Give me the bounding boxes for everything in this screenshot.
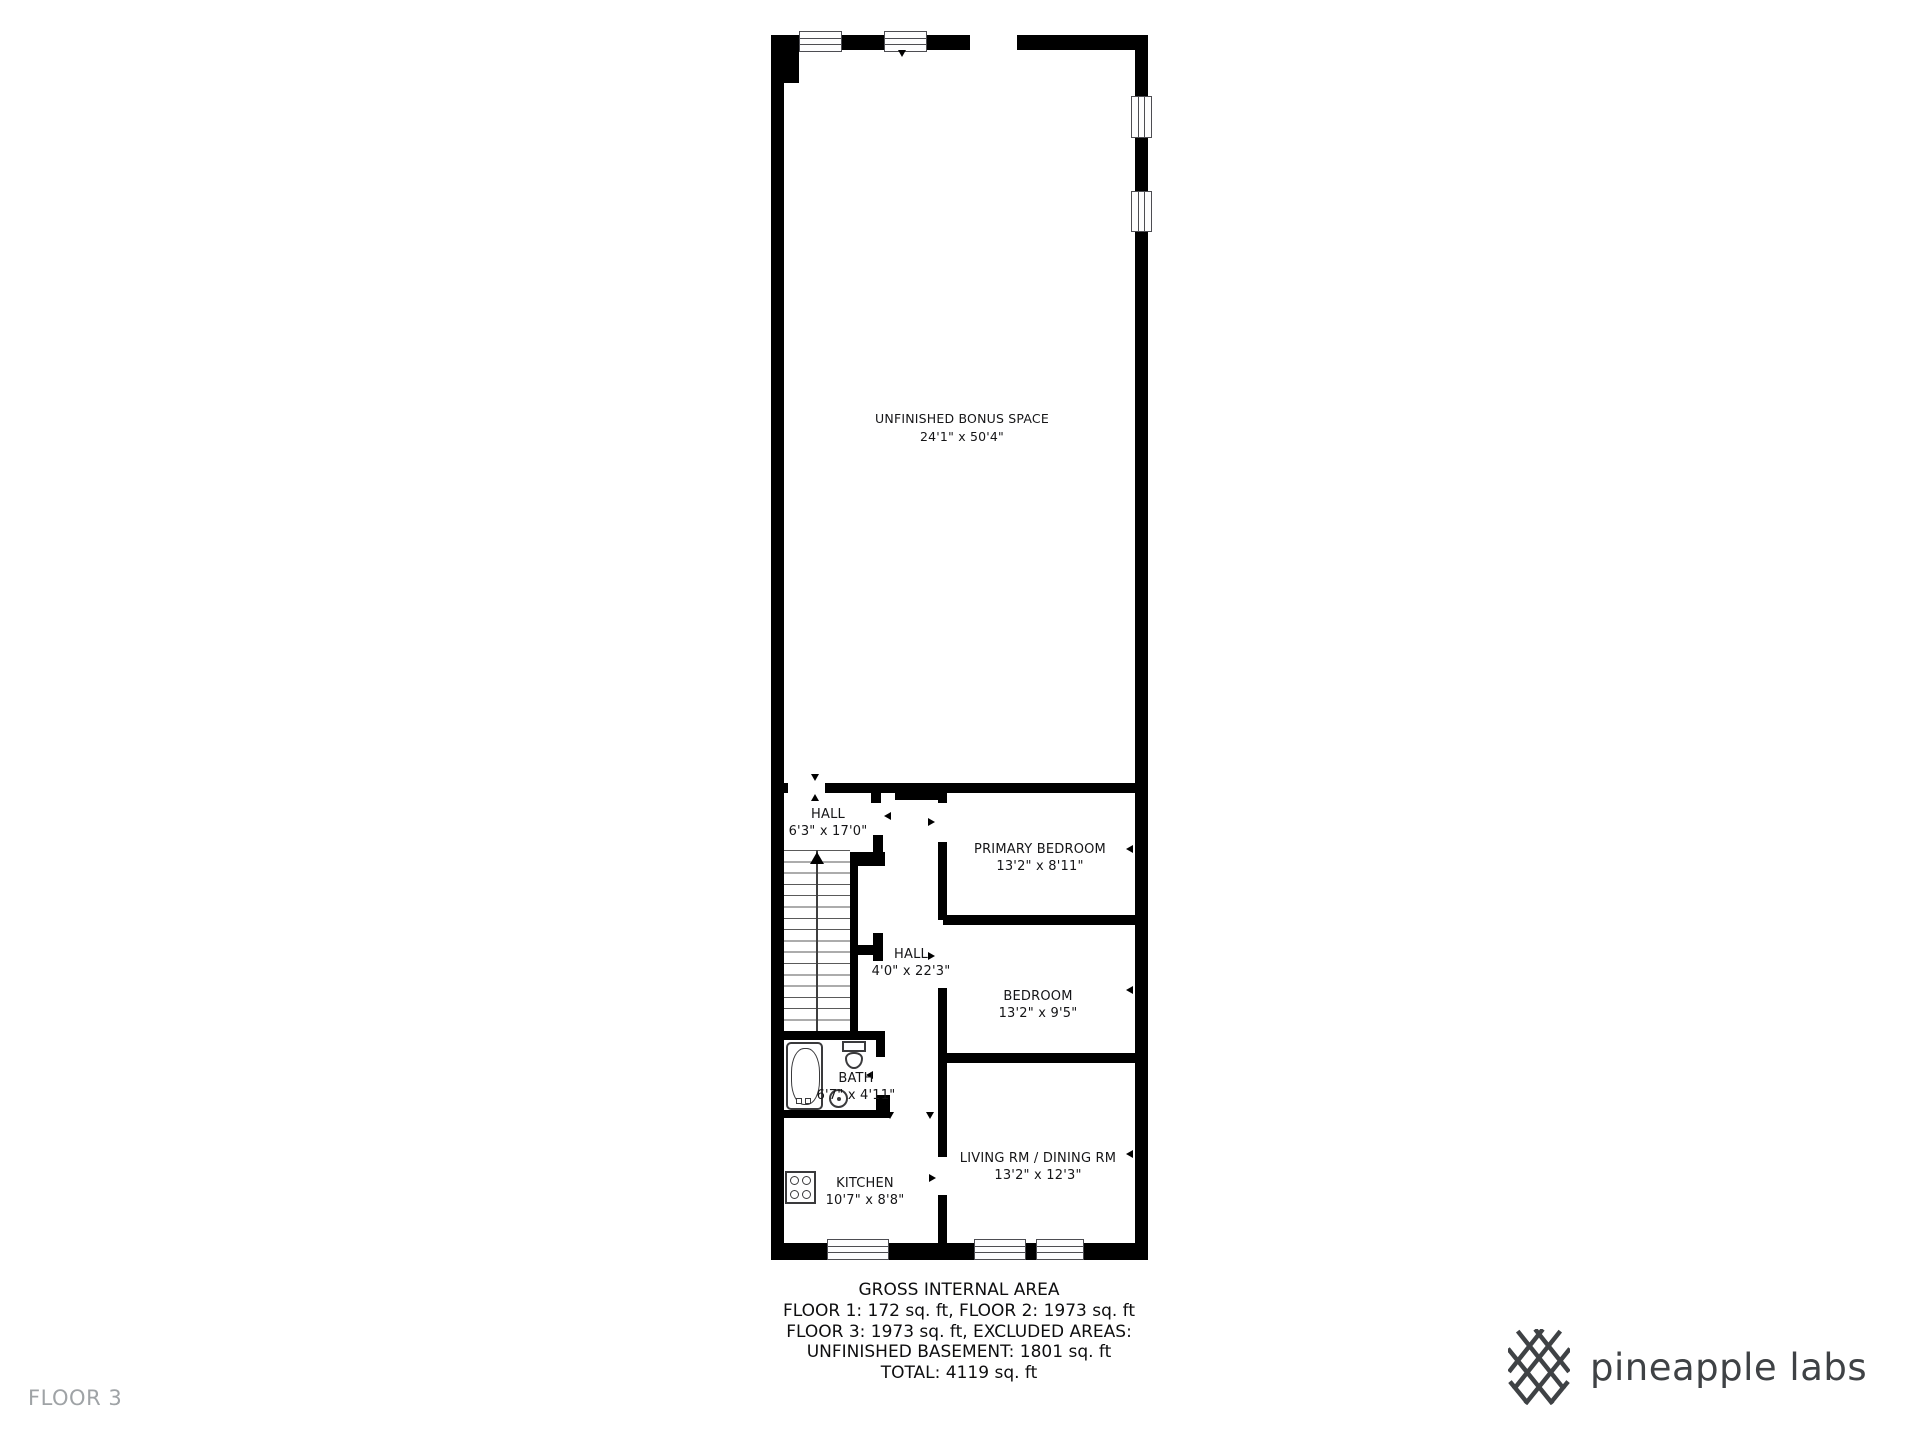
wall-opening xyxy=(788,783,825,793)
door-tick-icon xyxy=(926,1112,934,1119)
area-summary: GROSS INTERNAL AREA FLOOR 1: 172 sq. ft,… xyxy=(783,1280,1135,1384)
door-tick-icon xyxy=(886,1112,894,1119)
summary-line: FLOOR 3: 1973 sq. ft, EXCLUDED AREAS: xyxy=(783,1322,1135,1343)
room-label-hall-corridor: HALL 4'0" x 22'3" xyxy=(872,946,951,980)
room-dims: 13'2" x 12'3" xyxy=(960,1167,1116,1184)
room-dims: 13'2" x 8'11" xyxy=(974,858,1106,875)
stairs-up-arrow-icon xyxy=(810,852,824,864)
brand-logo: pineapple labs xyxy=(1508,1328,1867,1406)
room-label-bedroom: BEDROOM 13'2" x 9'5" xyxy=(999,988,1078,1022)
door-tick-icon xyxy=(884,812,891,820)
stove-burner xyxy=(802,1176,811,1185)
room-name: HALL xyxy=(872,946,951,963)
window xyxy=(884,31,927,52)
window xyxy=(974,1239,1026,1260)
wall-segment xyxy=(771,35,799,83)
room-dims: 6'7" x 4'11" xyxy=(817,1087,896,1104)
window xyxy=(1131,191,1152,232)
wall-segment xyxy=(943,915,1135,925)
wall-segment xyxy=(771,35,784,1260)
wall-segment xyxy=(895,783,938,800)
wall-segment xyxy=(938,842,947,920)
room-label-kitchen: KITCHEN 10'7" x 8'8" xyxy=(826,1175,905,1209)
bathtub-faucet xyxy=(805,1098,811,1104)
room-dims: 10'7" x 8'8" xyxy=(826,1192,905,1209)
brand-name: pineapple labs xyxy=(1590,1346,1867,1389)
toilet-tank xyxy=(842,1041,866,1052)
room-name: KITCHEN xyxy=(826,1175,905,1192)
wall-segment xyxy=(850,852,858,1031)
window xyxy=(799,31,842,52)
room-label-primary-bedroom: PRIMARY BEDROOM 13'2" x 8'11" xyxy=(974,841,1106,875)
floorplan-drawing xyxy=(0,0,1920,1440)
wall-segment xyxy=(876,1040,885,1057)
wall-segment xyxy=(771,1110,890,1118)
wall-segment xyxy=(771,1031,885,1040)
pineapple-lattice-icon xyxy=(1508,1329,1570,1405)
wall-segment xyxy=(771,783,1148,793)
stove-burner xyxy=(802,1190,811,1199)
stove xyxy=(785,1171,816,1204)
room-name: BATH xyxy=(817,1070,896,1087)
door-tick-icon xyxy=(928,818,935,826)
wall-segment xyxy=(938,793,947,803)
room-dims: 4'0" x 22'3" xyxy=(872,963,951,980)
stairs-center-line xyxy=(816,850,818,1031)
summary-line: UNFINISHED BASEMENT: 1801 sq. ft xyxy=(783,1342,1135,1363)
room-label-living-dining: LIVING RM / DINING RM 13'2" x 12'3" xyxy=(960,1150,1116,1184)
bathtub-faucet xyxy=(796,1098,802,1104)
room-label-hall-upper: HALL 6'3" x 17'0" xyxy=(789,806,868,840)
summary-line: TOTAL: 4119 sq. ft xyxy=(783,1363,1135,1384)
room-name: BEDROOM xyxy=(999,988,1078,1005)
wall-segment xyxy=(938,1195,947,1245)
door-tick-icon xyxy=(811,774,819,781)
summary-line: FLOOR 1: 172 sq. ft, FLOOR 2: 1973 sq. f… xyxy=(783,1301,1135,1322)
room-name: HALL xyxy=(789,806,868,823)
stove-burner xyxy=(790,1176,799,1185)
door-tick-icon xyxy=(1126,845,1133,853)
room-name: PRIMARY BEDROOM xyxy=(974,841,1106,858)
floor-label: FLOOR 3 xyxy=(28,1386,122,1410)
window xyxy=(827,1239,889,1260)
room-name: UNFINISHED BONUS SPACE xyxy=(875,410,1049,428)
room-name: LIVING RM / DINING RM xyxy=(960,1150,1116,1167)
room-label-bath: BATH 6'7" x 4'11" xyxy=(817,1070,896,1104)
summary-title: GROSS INTERNAL AREA xyxy=(783,1280,1135,1301)
door-tick-icon xyxy=(1126,1150,1133,1158)
door-tick-icon xyxy=(811,794,819,801)
room-label-bonus-space: UNFINISHED BONUS SPACE 24'1" x 50'4" xyxy=(875,410,1049,445)
room-dims: 13'2" x 9'5" xyxy=(999,1005,1078,1022)
wall-opening xyxy=(970,35,1017,50)
staircase xyxy=(784,850,850,1031)
floorplan-page: UNFINISHED BONUS SPACE 24'1" x 50'4" HAL… xyxy=(0,0,1920,1440)
door-tick-icon xyxy=(898,50,906,57)
wall-segment xyxy=(938,988,947,1157)
room-dims: 24'1" x 50'4" xyxy=(875,428,1049,446)
door-tick-icon xyxy=(1126,986,1133,994)
window xyxy=(1036,1239,1084,1260)
stove-burner xyxy=(790,1190,799,1199)
room-dims: 6'3" x 17'0" xyxy=(789,823,868,840)
wall-segment xyxy=(871,793,881,803)
window xyxy=(1131,96,1152,138)
wall-segment xyxy=(943,1053,1135,1063)
door-tick-icon xyxy=(929,1174,936,1182)
